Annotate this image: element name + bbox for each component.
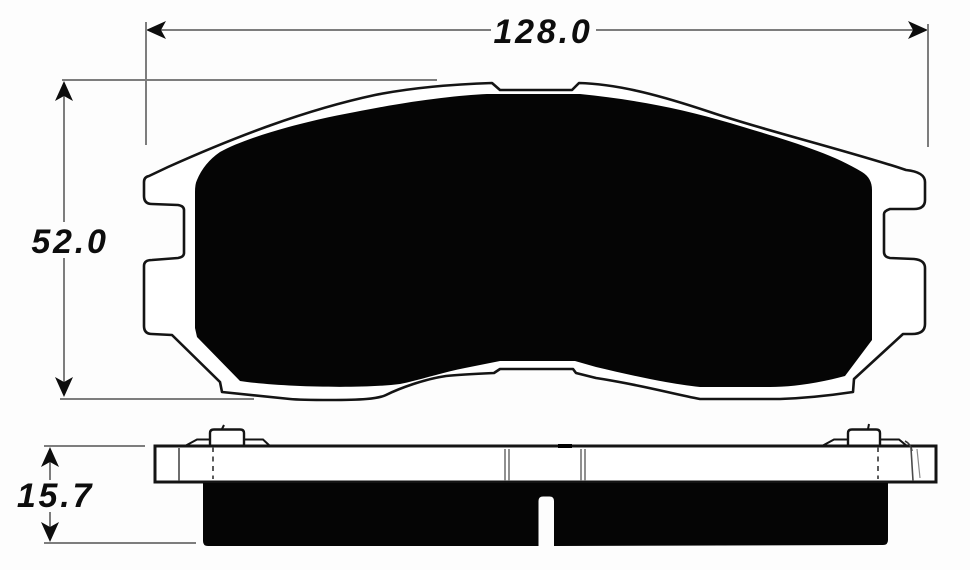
svg-text:52.0: 52.0 bbox=[31, 223, 108, 261]
svg-text:128.0: 128.0 bbox=[493, 13, 592, 51]
svg-text:15.7: 15.7 bbox=[17, 477, 94, 515]
